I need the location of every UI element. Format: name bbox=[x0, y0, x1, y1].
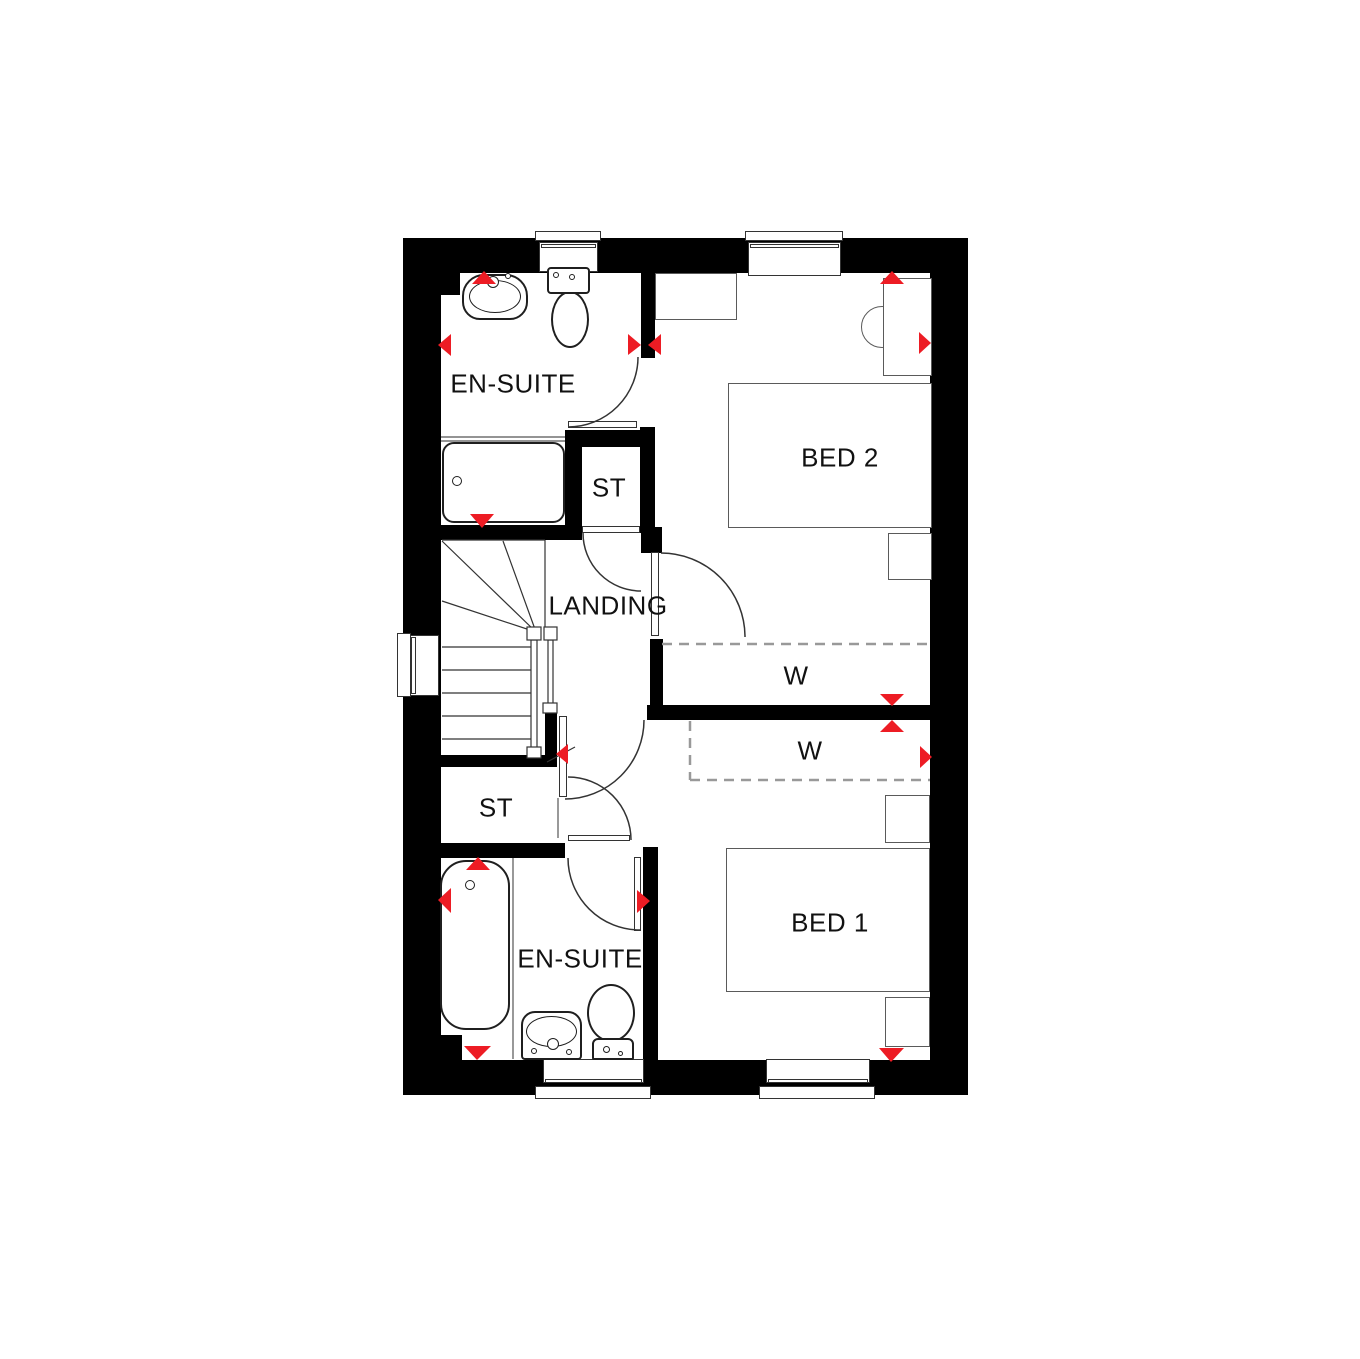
label-wardrobe-bed2: W bbox=[783, 661, 808, 692]
door-swing-st-top bbox=[583, 533, 641, 591]
floor-plan: EN-SUITE ST LANDING BED 2 W W ST EN-SUIT… bbox=[0, 0, 1360, 1359]
door-swing-ensuite-bottom bbox=[568, 858, 640, 930]
door-leaf-landing-south bbox=[568, 835, 630, 841]
basin-top-tap bbox=[487, 276, 499, 288]
toilet-bottom-bowl bbox=[587, 984, 635, 1042]
wall-above-st-top bbox=[565, 430, 655, 447]
stair-boundary bbox=[442, 540, 545, 628]
window-frame bbox=[745, 231, 843, 241]
door-swing-landing-south bbox=[568, 777, 631, 840]
wall-notch-topleft bbox=[441, 273, 460, 295]
wall-below-shower bbox=[403, 525, 565, 540]
bedside-table-bed1-top bbox=[885, 795, 930, 843]
window-frame bbox=[535, 1086, 651, 1099]
door-swing-landing bbox=[565, 720, 644, 799]
basin-bottom-dot2 bbox=[566, 1049, 572, 1055]
door-leaf-st-top bbox=[582, 526, 640, 533]
wall-exterior-right bbox=[930, 238, 968, 1095]
toilet-bottom-cistern bbox=[592, 1038, 634, 1060]
door-leaf-landing bbox=[559, 716, 567, 797]
wall-stairs-bottom bbox=[441, 755, 557, 767]
door-leaf-ensuite-top bbox=[568, 421, 637, 428]
toilet-bottom-dot2 bbox=[618, 1051, 623, 1056]
stair-winders bbox=[442, 541, 536, 632]
wall-st-bottom-south bbox=[403, 843, 565, 858]
arrow-up-wardrobe bbox=[880, 720, 904, 732]
window-frame bbox=[535, 231, 601, 241]
bedside-table-bed2 bbox=[888, 533, 932, 580]
window-sash bbox=[768, 1079, 868, 1083]
wall-stairs-right bbox=[545, 708, 557, 767]
shower-drain bbox=[452, 476, 462, 486]
bath-tap bbox=[465, 880, 475, 890]
wall-exterior-top bbox=[403, 238, 968, 273]
bath bbox=[440, 860, 510, 1030]
window-sash bbox=[750, 244, 839, 248]
toilet-top-bowl bbox=[551, 291, 589, 348]
shower-enclosure-line bbox=[441, 437, 565, 441]
bedside-table-bed1-bottom bbox=[885, 997, 930, 1047]
wall-junction-block bbox=[641, 527, 662, 553]
door-swing-bed2 bbox=[661, 553, 745, 637]
label-ensuite-bottom: EN-SUITE bbox=[517, 944, 642, 975]
basin-bottom-tap bbox=[547, 1038, 559, 1050]
wall-ensuite-bed1 bbox=[643, 847, 658, 1060]
window-sash bbox=[545, 1079, 642, 1083]
stair-newel-2a bbox=[544, 627, 557, 640]
door-swing-ensuite-top bbox=[568, 357, 638, 427]
label-bed1: BED 1 bbox=[791, 908, 869, 939]
label-st-bottom: ST bbox=[479, 793, 513, 824]
stair-handrail-1 bbox=[531, 640, 537, 748]
label-bed2: BED 2 bbox=[801, 443, 879, 474]
label-st-top: ST bbox=[592, 473, 626, 504]
wall-landing-east bbox=[650, 639, 663, 720]
stair-newel-1a bbox=[527, 627, 541, 640]
door-leaf-ensuite-bottom bbox=[634, 857, 641, 931]
wall-ensuite-bed2 bbox=[641, 273, 655, 358]
label-landing: LANDING bbox=[548, 591, 667, 622]
arrow-right-door-top bbox=[628, 334, 641, 355]
window-frame bbox=[397, 633, 411, 697]
toilet-top-cistern bbox=[547, 267, 590, 294]
shelf-bed2 bbox=[655, 273, 737, 320]
stair-treads bbox=[442, 647, 531, 739]
label-ensuite-top: EN-SUITE bbox=[450, 369, 575, 400]
label-wardrobe-bed1: W bbox=[797, 736, 822, 767]
plan-linework bbox=[0, 0, 1360, 1359]
arrow-down-bath bbox=[464, 1046, 491, 1060]
toilet-bottom-dot1 bbox=[603, 1046, 610, 1053]
stair-handrail-2 bbox=[548, 640, 553, 704]
basin-top-dot bbox=[505, 273, 511, 279]
toilet-top-dot2 bbox=[569, 274, 575, 280]
wall-block-bottomleft bbox=[441, 1035, 462, 1060]
toilet-top-dot1 bbox=[553, 272, 559, 278]
basin-bottom-dot1 bbox=[531, 1048, 537, 1054]
wall-landing-bed1 bbox=[647, 705, 930, 720]
wall-exterior-bottom bbox=[403, 1060, 968, 1095]
window-frame bbox=[759, 1086, 875, 1099]
desk-bed2 bbox=[883, 278, 932, 376]
window-sash bbox=[541, 244, 596, 248]
window-sash bbox=[411, 637, 416, 694]
